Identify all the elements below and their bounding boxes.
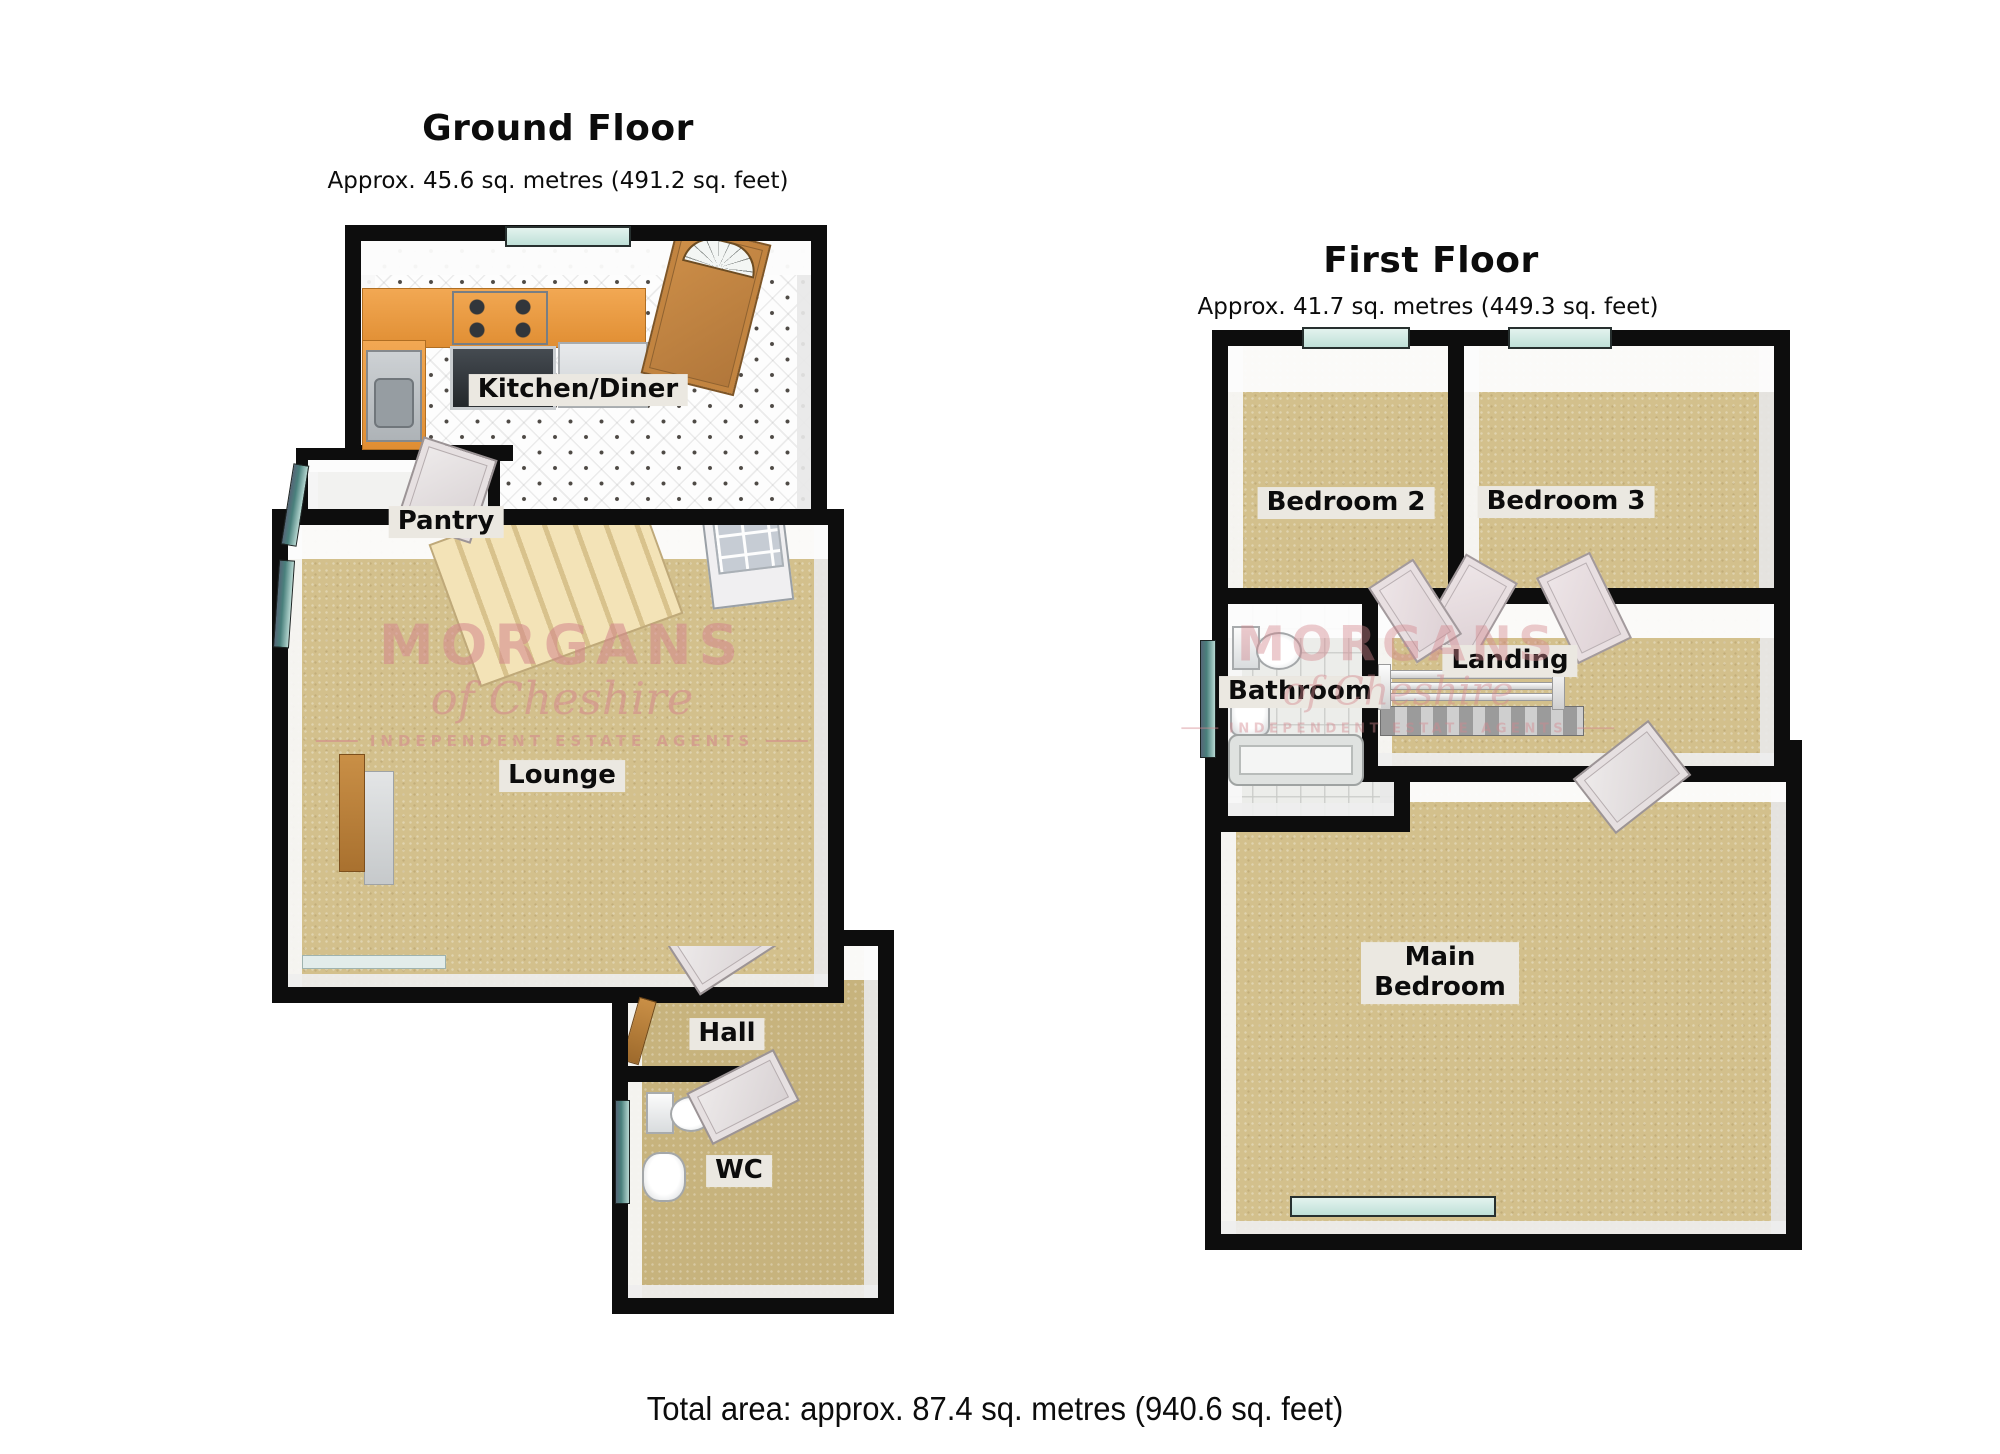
bathroom-label: Bathroom (1219, 676, 1381, 708)
back-door (700, 509, 795, 610)
bedroom2-window (1302, 327, 1410, 349)
bathtub (1228, 734, 1364, 786)
bedroom3-label: Bedroom 3 (1478, 486, 1655, 518)
wc-door (686, 1049, 800, 1145)
wc-window (615, 1100, 630, 1204)
front-door (641, 225, 772, 396)
bedroom3-window (1508, 327, 1612, 349)
stairwell-opening (1380, 706, 1584, 736)
wc-label: WC (706, 1155, 772, 1187)
hall-shelf-furniture (621, 997, 656, 1065)
bathroom-window (1200, 640, 1216, 758)
landing-label: Landing (1442, 645, 1577, 677)
wc-sink (642, 1152, 686, 1202)
main-bedroom-window (1290, 1196, 1496, 1217)
first-floor-subtitle: Approx. 41.7 sq. metres (449.3 sq. feet) (1198, 294, 1659, 320)
ground-floor-subtitle: Approx. 45.6 sq. metres (491.2 sq. feet) (328, 168, 789, 194)
lounge-window (302, 955, 446, 969)
fireplace (339, 754, 365, 872)
lounge-label: Lounge (499, 760, 625, 792)
stove-hob (452, 291, 548, 345)
total-area-text: Total area: approx. 87.4 sq. metres (940… (647, 1390, 1344, 1428)
banister-rail-2 (1382, 682, 1562, 690)
sink-basin (374, 378, 414, 428)
first-floor-title: First Floor (1323, 240, 1539, 281)
lounge-room (272, 509, 844, 1003)
hall-label: Hall (689, 1018, 764, 1050)
bathroom-toilet-bowl (1256, 632, 1302, 670)
fireplace-hearth (364, 771, 394, 885)
bedroom2-label: Bedroom 2 (1258, 487, 1435, 519)
kitchen-sink (366, 350, 422, 442)
banister-rail-3 (1382, 693, 1562, 701)
front-door-fanlight (682, 232, 761, 279)
pantry-label: Pantry (389, 506, 504, 538)
kitchen-label: Kitchen/Diner (469, 374, 688, 406)
kitchen-window (505, 226, 631, 247)
ground-floor-title: Ground Floor (422, 108, 694, 149)
main-bedroom-label: Main Bedroom (1361, 942, 1519, 1004)
floorplan-canvas: Ground Floor Approx. 45.6 sq. metres (49… (0, 0, 2000, 1454)
back-door-glass (711, 509, 784, 574)
